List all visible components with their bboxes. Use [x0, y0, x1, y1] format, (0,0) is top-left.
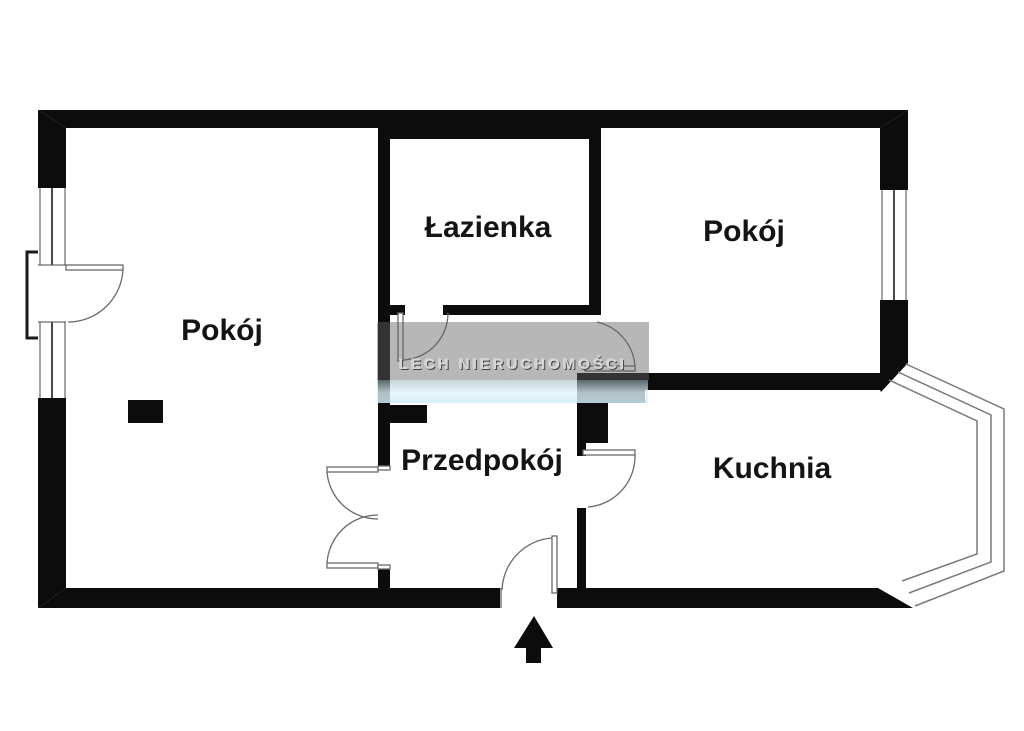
wall-top [38, 110, 908, 128]
window-right [882, 190, 906, 300]
walls [38, 110, 913, 608]
wall-kitchen-below-door [577, 508, 586, 588]
balcony-threshold [27, 252, 38, 338]
room-label-lazienka: Łazienka [425, 211, 552, 245]
wall-kitchen-step [577, 403, 608, 443]
wall-interior-left-vertical [378, 128, 390, 470]
room-label-pokoj-right: Pokój [703, 215, 785, 249]
room-label-kuchnia: Kuchnia [713, 452, 831, 486]
bay-window [889, 364, 1004, 606]
wall-left-lower [38, 398, 66, 608]
pillar-left-room [128, 400, 163, 423]
bay-window-outer-line [906, 364, 1004, 606]
wall-right-lower [880, 300, 908, 392]
balcony-door [66, 265, 123, 322]
entrance-arrow-icon [514, 616, 553, 663]
doors [66, 265, 635, 608]
room-label-przedpokoj: Przedpokój [401, 444, 563, 478]
double-door [327, 466, 390, 569]
kitchen-door [583, 450, 635, 507]
floor-plan-drawing [0, 0, 1024, 731]
pokoj-right-door [585, 322, 635, 371]
room-label-pokoj-left: Pokój [181, 314, 263, 348]
window-left [38, 188, 66, 398]
wall-kitchen-step-wide [577, 390, 645, 403]
wall-top-step [378, 126, 600, 139]
wall-bottom-right [557, 588, 913, 608]
wall-interior-right-stub [577, 306, 589, 314]
wall-hallway-stub [390, 405, 427, 423]
bay-window-inner-line [889, 380, 977, 581]
floor-plan: LECH NIERUCHOMOŚCI Pokój Łazienka Pokój … [0, 0, 1024, 731]
wall-interior-right-vertical [589, 128, 601, 312]
wall-pokoj-right-bottom [577, 373, 880, 390]
bathroom-door [398, 313, 448, 361]
wall-bottom-left [38, 588, 500, 608]
entrance-door [501, 536, 557, 608]
